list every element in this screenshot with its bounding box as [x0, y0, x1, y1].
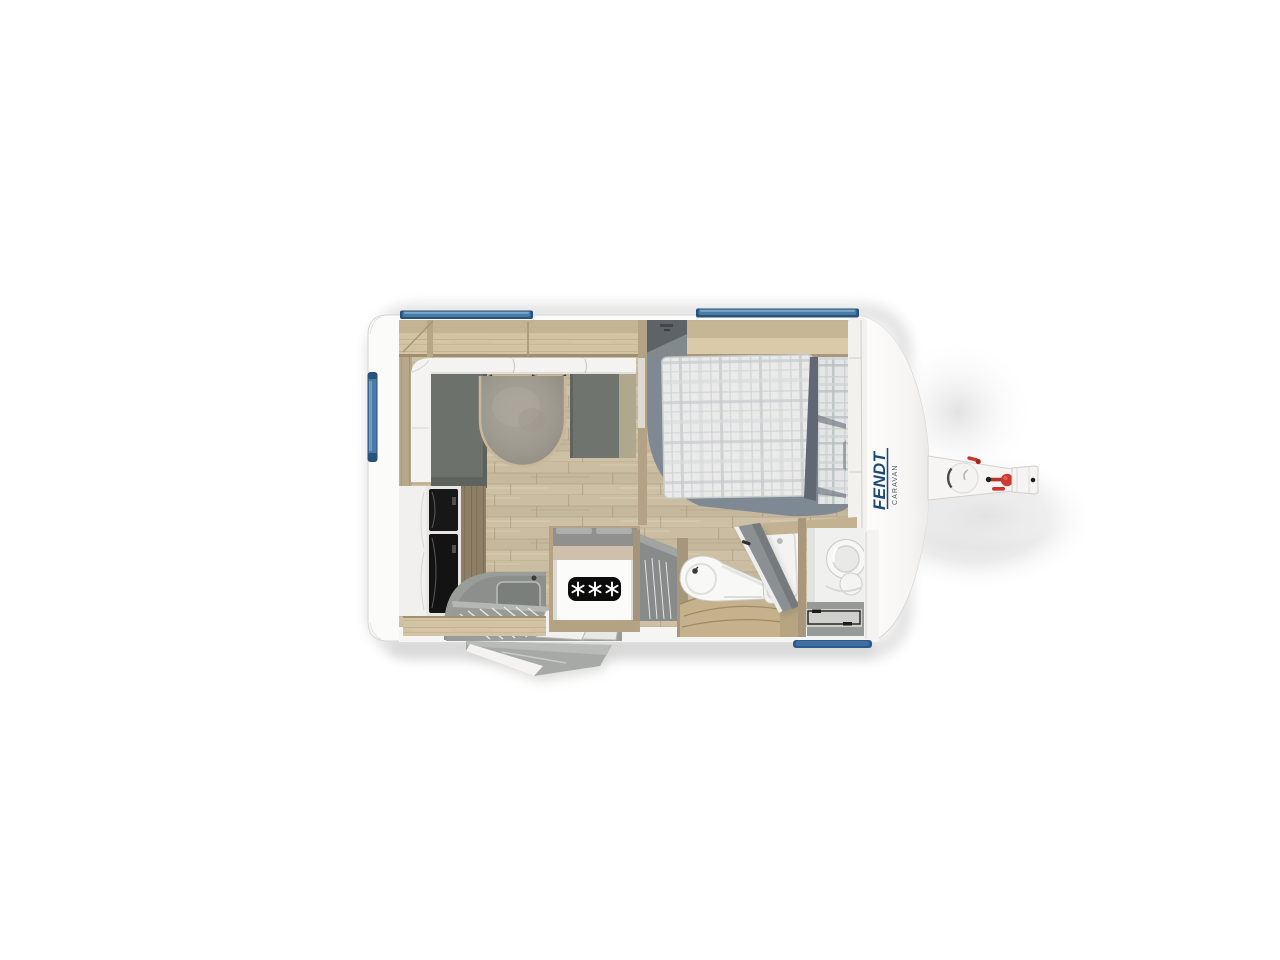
svg-text:FENDT: FENDT	[870, 451, 889, 510]
svg-text:CARAVAN: CARAVAN	[892, 464, 899, 505]
